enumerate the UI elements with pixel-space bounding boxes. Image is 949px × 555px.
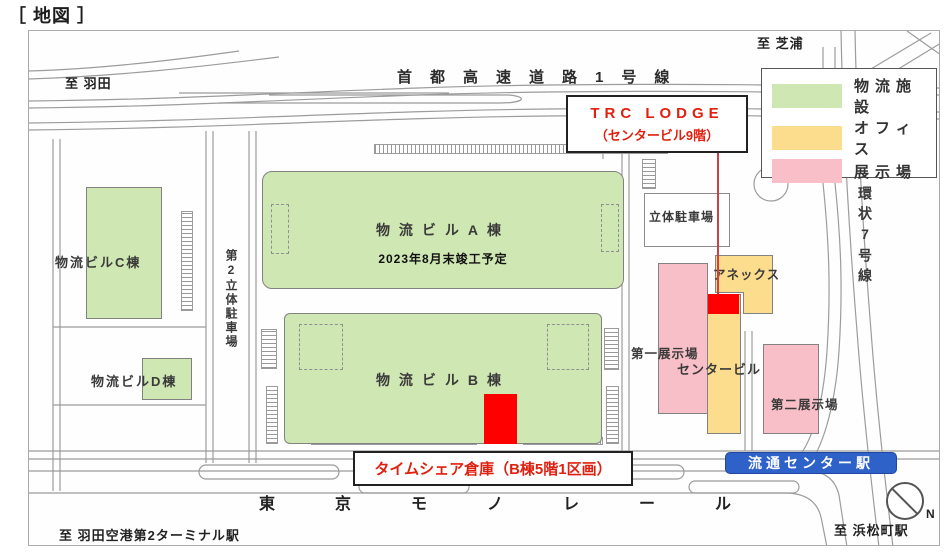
map-page: ［ 地図 ］ [0, 0, 949, 555]
hatch-strip [261, 329, 277, 369]
building-b-bay [547, 324, 589, 370]
building-d-label: 物流ビルD棟 [91, 371, 177, 390]
to-hamamatsucho-label: 至 浜松町駅 [834, 520, 909, 539]
legend-swatch-yellow [772, 126, 842, 150]
to-shibaura-label: 至 芝浦 [757, 33, 804, 52]
compass-needle [891, 487, 919, 515]
annex-building-wing [743, 292, 773, 314]
parking-label: 立体駐車場 [649, 208, 714, 225]
hatch-strip [642, 159, 656, 189]
trc-lodge-subtitle: （センタービル9階） [595, 125, 719, 144]
legend-item-logistics: 物流施設 [772, 75, 926, 117]
legend-label: 展示場 [854, 161, 917, 182]
trc-lodge-pointer-line [717, 153, 719, 294]
timeshare-label-box: タイムシェア倉庫（B棟5階1区画） [353, 451, 633, 486]
building-a-label: 物流ビルA棟 [263, 220, 623, 240]
building-a-completion-note: 2023年8月末竣工予定 [263, 250, 623, 267]
monorail-label: 東京モノレール [259, 490, 791, 514]
trc-lodge-box: TRC LODGE （センタービル9階） [566, 95, 748, 153]
legend-swatch-green [772, 84, 842, 108]
building-b: 物流ビルB棟 [284, 313, 602, 444]
north-label: N [926, 507, 935, 521]
legend-item-office: オフィス [772, 117, 926, 159]
legend-label: 物流施設 [854, 75, 926, 117]
timeshare-marker [484, 394, 517, 444]
hatch-strip [604, 328, 619, 370]
trc-lodge-marker [708, 294, 739, 314]
exhibition-hall-1 [658, 263, 708, 414]
parking2-label: 第2立体駐車場 [223, 249, 240, 349]
trc-lodge-title: TRC LODGE [590, 105, 723, 122]
building-c-label: 物流ビルC棟 [55, 252, 141, 271]
station-name: 流通センター駅 [748, 453, 874, 473]
to-haneda-airport-label: 至 羽田空港第2ターミナル駅 [59, 525, 240, 544]
ring-road-label: 環状7号線 [855, 186, 875, 288]
map-canvas: 首都高速道路1号線 至 羽田 至 芝浦 環状7号線 物流施設 オフィス 展示場 … [28, 30, 940, 546]
expressway-label: 首都高速道路1号線 [397, 66, 687, 87]
timeshare-label: タイムシェア倉庫（B棟5階1区画） [374, 458, 611, 479]
hatch-strip [266, 386, 278, 444]
annex-label: アネックス [713, 264, 780, 283]
building-a: 物流ビルA棟 2023年8月末竣工予定 [262, 171, 624, 289]
building-b-bay [299, 324, 343, 370]
legend-swatch-pink [772, 159, 842, 183]
exhibition-hall-1-label: 第一展示場 [631, 343, 699, 362]
hatch-strip [181, 211, 193, 311]
legend-label: オフィス [854, 117, 926, 159]
hatch-strip [606, 386, 619, 444]
legend: 物流施設 オフィス 展示場 [761, 68, 937, 178]
compass-icon [886, 482, 924, 520]
legend-item-exhibition: 展示場 [772, 159, 926, 183]
exhibition-hall-2-label: 第二展示場 [771, 394, 839, 413]
station-badge: 流通センター駅 [725, 452, 897, 474]
to-haneda-label: 至 羽田 [65, 73, 112, 92]
exhibition-hall-2 [763, 344, 819, 434]
building-b-label: 物流ビルB棟 [285, 370, 601, 390]
page-title: ［ 地図 ］ [8, 2, 96, 28]
